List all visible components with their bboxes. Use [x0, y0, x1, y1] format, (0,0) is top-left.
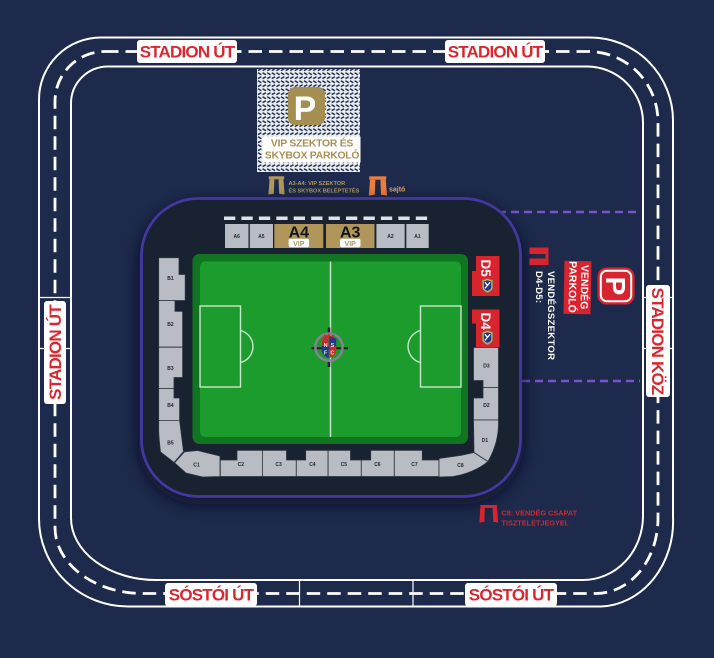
svg-text:B2: B2 — [167, 322, 174, 328]
svg-text:STADION ÚT: STADION ÚT — [46, 304, 65, 400]
svg-text:SÓSTÓI ÚT: SÓSTÓI ÚT — [169, 586, 255, 605]
svg-text:PARKOLÓ: PARKOLÓ — [566, 261, 580, 313]
svg-text:VENDÉGSZEKTOR: VENDÉGSZEKTOR — [545, 271, 556, 360]
svg-text:C4: C4 — [309, 462, 316, 468]
svg-text:D4: D4 — [478, 313, 493, 331]
svg-text:C2: C2 — [238, 462, 245, 468]
svg-text:D2: D2 — [483, 403, 490, 409]
svg-text:SKYBOX PARKOLÓ: SKYBOX PARKOLÓ — [265, 149, 360, 162]
svg-text:A3-A4: VIP SZEKTOR: A3-A4: VIP SZEKTOR — [289, 181, 346, 187]
svg-text:VIP SZEKTOR ÉS: VIP SZEKTOR ÉS — [271, 137, 353, 150]
svg-text:P: P — [600, 277, 631, 296]
svg-text:C3: C3 — [275, 462, 282, 468]
svg-text:C8: VENDÉG CSAPAT: C8: VENDÉG CSAPAT — [502, 509, 578, 518]
svg-text:B4: B4 — [167, 403, 174, 409]
svg-text:VENDÉG: VENDÉG — [578, 265, 592, 310]
svg-text:A5: A5 — [258, 234, 265, 240]
svg-text:B1: B1 — [167, 276, 174, 282]
svg-text:A2: A2 — [387, 234, 394, 240]
svg-text:TISZTELETJEGYEI.: TISZTELETJEGYEI. — [502, 519, 569, 528]
svg-text:ÉS SKYBOX BELÉPTETÉS: ÉS SKYBOX BELÉPTETÉS — [289, 187, 360, 195]
svg-text:SÓSTÓI ÚT: SÓSTÓI ÚT — [469, 586, 555, 605]
svg-text:VIP: VIP — [345, 241, 357, 248]
svg-text:C5: C5 — [341, 462, 348, 468]
svg-text:C7: C7 — [411, 462, 418, 468]
svg-text:A6: A6 — [233, 234, 240, 240]
svg-text:D5: D5 — [478, 260, 493, 278]
svg-text:C1: C1 — [193, 463, 200, 469]
svg-text:C: C — [330, 351, 334, 357]
svg-text:VIP: VIP — [293, 241, 305, 248]
svg-text:D3: D3 — [483, 364, 490, 370]
svg-text:STADION ÚT: STADION ÚT — [448, 43, 544, 62]
svg-text:B5: B5 — [167, 441, 174, 447]
svg-text:sajtó: sajtó — [389, 187, 405, 194]
svg-text:S: S — [331, 343, 335, 349]
svg-text:C8: C8 — [457, 463, 464, 469]
svg-text:B3: B3 — [167, 366, 174, 372]
svg-text:STADION KÖZ: STADION KÖZ — [648, 287, 667, 394]
svg-text:D4-D5:: D4-D5: — [533, 271, 544, 303]
svg-text:P: P — [294, 90, 317, 128]
svg-text:A1: A1 — [414, 234, 421, 240]
svg-text:D1: D1 — [482, 438, 489, 444]
svg-text:N: N — [324, 343, 328, 349]
svg-text:C6: C6 — [374, 462, 381, 468]
svg-text:STADION ÚT: STADION ÚT — [140, 43, 236, 62]
